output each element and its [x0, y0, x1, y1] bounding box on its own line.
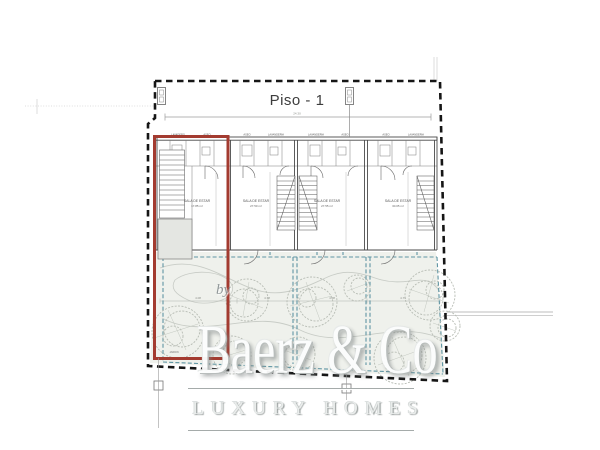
floorplan-drawing: 4.08 4.38 4.08 4.75: [0, 0, 600, 450]
garden-dim-1: 4.08: [195, 296, 201, 300]
service-label: LAVANDERIA: [308, 133, 324, 137]
room-area: 30.05 m²: [392, 204, 404, 208]
room-label: SALA DE ESTAR: [314, 199, 341, 203]
garden-label: JARDIN: [169, 350, 178, 354]
service-label: LAVANDERIA: [268, 133, 284, 137]
utility-room: [158, 219, 192, 259]
room-label: SALA DE ESTAR: [385, 199, 412, 203]
floor-title: Piso - 1: [270, 92, 325, 109]
service-label: ASEO: [341, 133, 348, 137]
overall-dimension: 24.30: [293, 112, 301, 116]
floorplan-image: 4.08 4.38 4.08 4.75: [0, 0, 600, 450]
service-label: ASEO: [243, 133, 250, 137]
service-label: ASEO: [382, 133, 389, 137]
garden-dim-2: 4.38: [264, 296, 270, 300]
room-area: 17.85 m²: [191, 204, 203, 208]
room-label: SALA DE ESTAR: [184, 199, 211, 203]
building-block: LAVADERO ASEO ASEO LAVANDERIA LAVANDERIA…: [155, 133, 437, 265]
room-area: 27.50 m²: [250, 204, 262, 208]
service-label: LAVANDERIA: [408, 133, 424, 137]
room-label: SALA DE ESTAR: [243, 199, 270, 203]
room-area: 27.55 m²: [321, 204, 333, 208]
